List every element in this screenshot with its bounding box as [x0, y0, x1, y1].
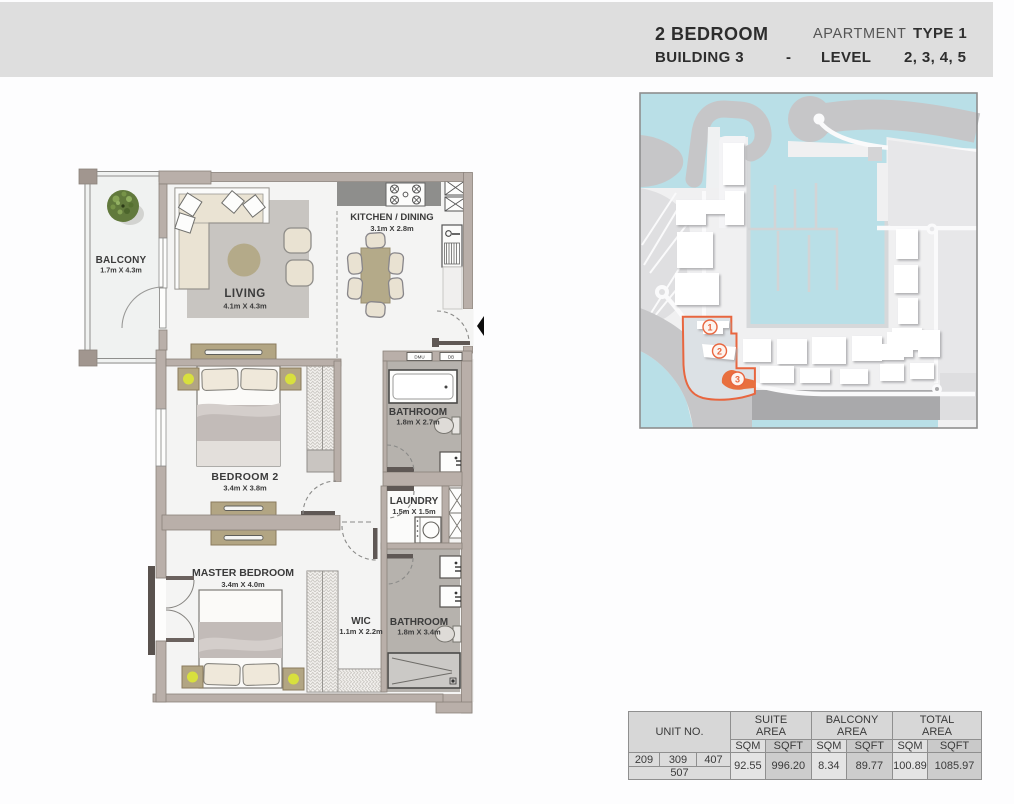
svg-text:BATHROOM: BATHROOM [389, 407, 447, 418]
svg-text:KITCHEN / DINING: KITCHEN / DINING [350, 212, 433, 223]
svg-text:DB: DB [448, 355, 454, 360]
svg-text:DMU: DMU [414, 355, 424, 360]
svg-text:1.5m X 1.5m: 1.5m X 1.5m [392, 507, 436, 516]
svg-text:2: 2 [717, 347, 722, 357]
svg-text:LAUNDRY: LAUNDRY [390, 496, 439, 507]
svg-text:MASTER BEDROOM: MASTER BEDROOM [192, 567, 294, 579]
svg-text:3.4m X 4.0m: 3.4m X 4.0m [221, 580, 265, 589]
svg-text:BATHROOM: BATHROOM [390, 617, 448, 628]
svg-text:1.1m X 2.2m: 1.1m X 2.2m [339, 627, 383, 636]
svg-text:4.1m X 4.3m: 4.1m X 4.3m [223, 302, 267, 311]
svg-text:3.4m X 3.8m: 3.4m X 3.8m [223, 484, 267, 493]
svg-text:3.1m X 2.8m: 3.1m X 2.8m [370, 224, 414, 233]
svg-text:1.8m X 2.7m: 1.8m X 2.7m [396, 418, 440, 427]
svg-text:1.7m X 4.3m: 1.7m X 4.3m [100, 266, 142, 275]
svg-text:BALCONY: BALCONY [96, 255, 147, 266]
svg-text:1: 1 [707, 323, 712, 333]
svg-text:WIC: WIC [351, 616, 370, 627]
svg-text:1.8m X 3.4m: 1.8m X 3.4m [397, 628, 441, 637]
svg-text:LIVING: LIVING [224, 288, 265, 300]
svg-text:BEDROOM 2: BEDROOM 2 [211, 471, 278, 483]
svg-text:3: 3 [735, 375, 740, 385]
